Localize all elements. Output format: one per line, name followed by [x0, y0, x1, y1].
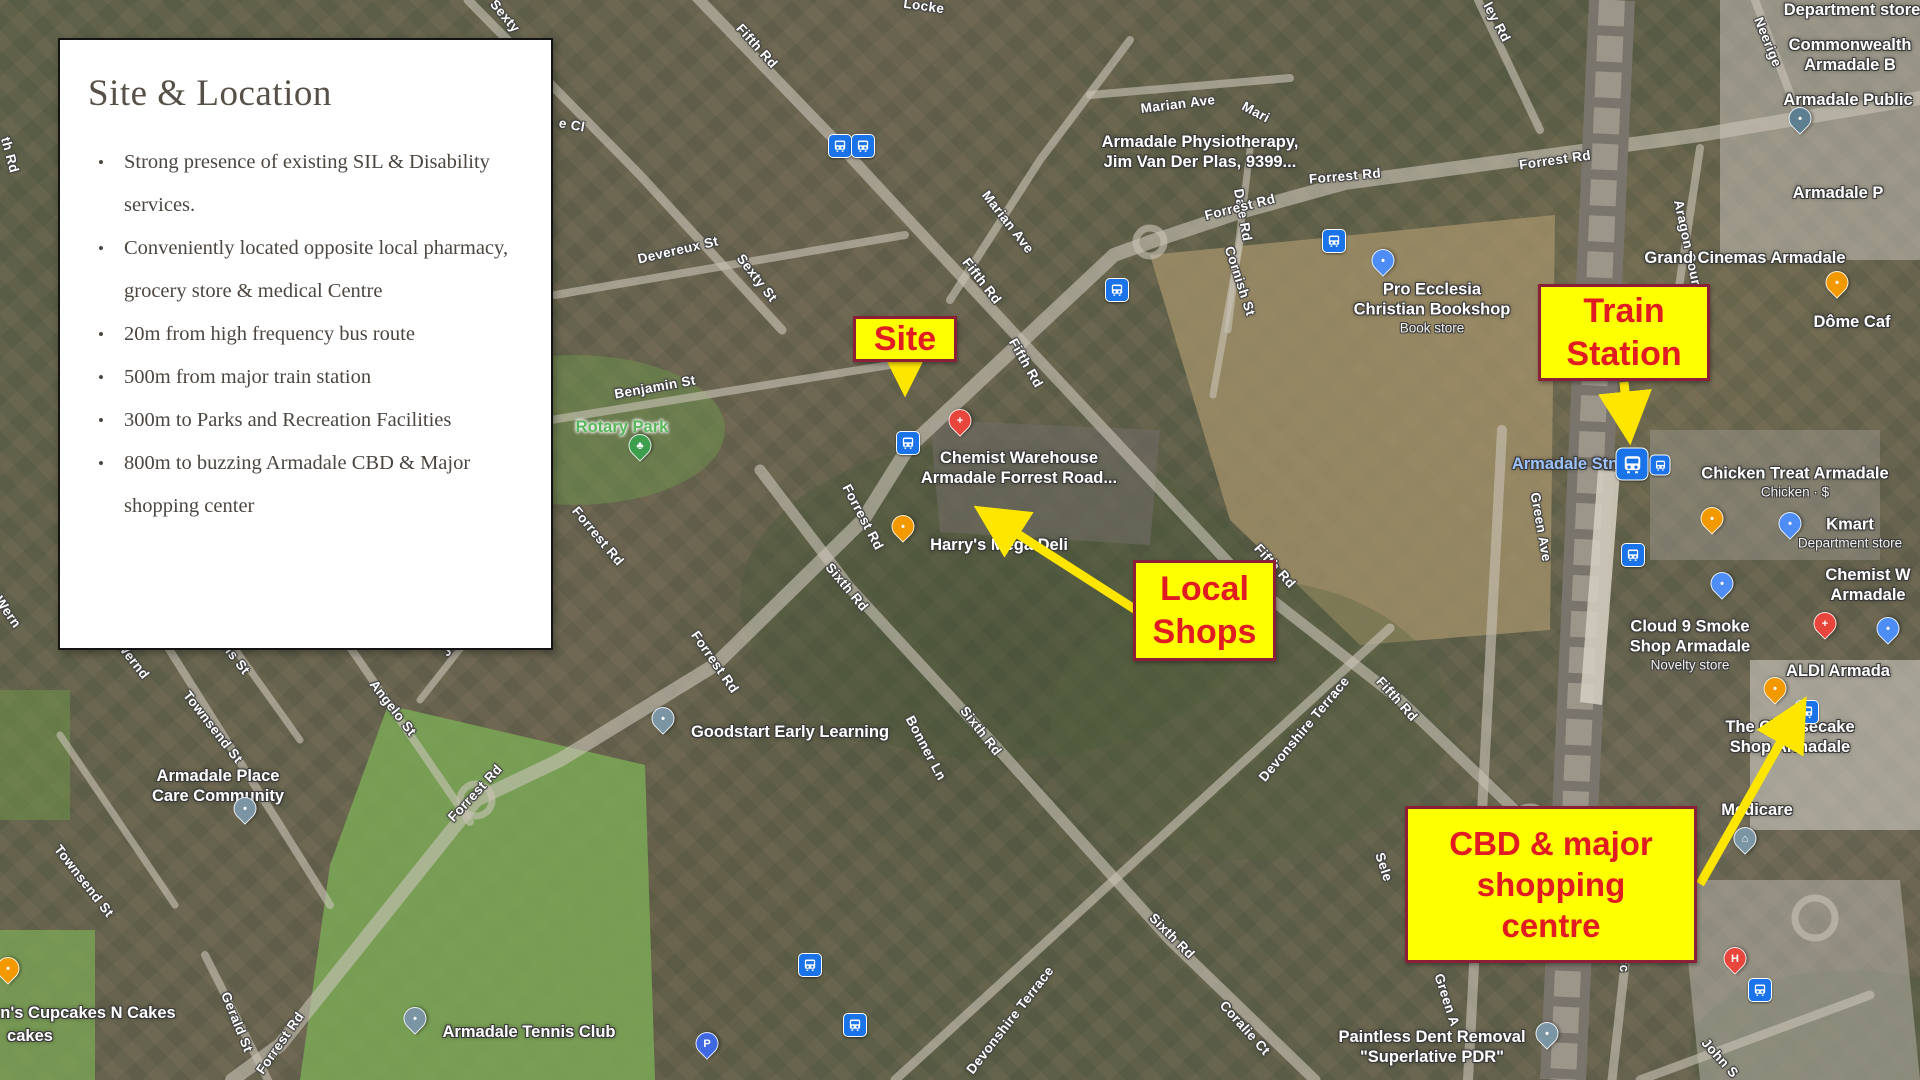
train-station-line: Train [1583, 290, 1664, 333]
bullet-item: 20m from high frequency bus route [94, 313, 517, 356]
bullet-item: Conveniently located opposite local phar… [94, 227, 517, 313]
train-station-arrow [1624, 382, 1629, 432]
local-shops-callout: Local Shops [1133, 560, 1276, 661]
local-shops-arrow [985, 513, 1136, 610]
site-callout: Site [853, 316, 957, 362]
slide-map-canvas: SextyFifth Rde ClLockeMarian AveMariMari… [0, 0, 1920, 1080]
bullet-item: 500m from major train station [94, 356, 517, 399]
cbd-arrow [1700, 708, 1800, 884]
bullet-item: 300m to Parks and Recreation Facilities [94, 399, 517, 442]
cbd-line: centre [1501, 905, 1600, 946]
site-callout-label: Site [874, 318, 936, 361]
local-shops-line: Shops [1153, 611, 1257, 654]
bullet-item: Strong presence of existing SIL & Disabi… [94, 141, 517, 227]
info-box-title: Site & Location [88, 72, 521, 115]
cbd-line: CBD & major [1449, 823, 1653, 864]
info-box-bullet-list: Strong presence of existing SIL & Disabi… [82, 141, 521, 528]
site-location-info-box: Site & Location Strong presence of exist… [58, 38, 553, 650]
bullet-item: 800m to buzzing Armadale CBD & Major sho… [94, 442, 517, 528]
cbd-callout: CBD & major shopping centre [1405, 806, 1697, 963]
cbd-line: shopping [1477, 864, 1625, 905]
train-station-line: Station [1566, 333, 1681, 376]
train-station-callout: Train Station [1538, 284, 1710, 381]
local-shops-line: Local [1160, 568, 1249, 611]
